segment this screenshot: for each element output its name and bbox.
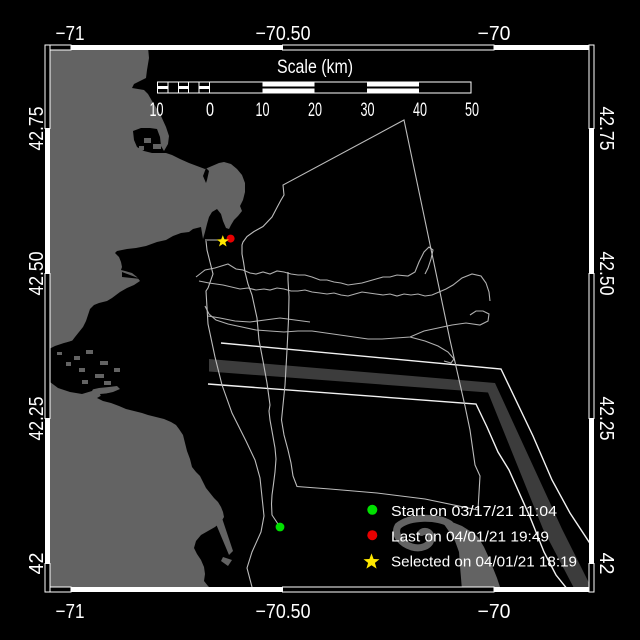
svg-text:40: 40 — [413, 100, 427, 121]
svg-text:−70: −70 — [478, 601, 511, 623]
svg-text:Last on 04/01/21 19:49: Last on 04/01/21 19:49 — [391, 529, 549, 546]
svg-text:42.75: 42.75 — [26, 107, 48, 151]
svg-text:Start on 03/17/21 11:04: Start on 03/17/21 11:04 — [391, 503, 557, 520]
svg-text:42.25: 42.25 — [595, 397, 617, 441]
svg-text:30: 30 — [361, 100, 375, 121]
svg-text:50: 50 — [465, 100, 479, 121]
svg-text:10: 10 — [150, 100, 164, 121]
svg-text:Scale (km): Scale (km) — [277, 57, 353, 78]
svg-text:−71: −71 — [56, 23, 85, 45]
svg-text:−70: −70 — [478, 23, 511, 45]
svg-text:42: 42 — [595, 553, 617, 575]
svg-text:42.50: 42.50 — [595, 252, 617, 296]
svg-text:Selected on 04/01/21 18:19: Selected on 04/01/21 18:19 — [391, 554, 577, 571]
svg-text:42.50: 42.50 — [26, 252, 48, 296]
svg-text:−70.50: −70.50 — [256, 23, 311, 45]
svg-text:−71: −71 — [56, 601, 85, 623]
svg-text:42.75: 42.75 — [595, 107, 617, 151]
svg-text:−70.50: −70.50 — [256, 601, 311, 623]
svg-text:10: 10 — [256, 100, 270, 121]
svg-text:0: 0 — [206, 100, 214, 121]
svg-text:20: 20 — [308, 100, 322, 121]
svg-text:42: 42 — [26, 553, 48, 575]
svg-text:42.25: 42.25 — [26, 397, 48, 441]
